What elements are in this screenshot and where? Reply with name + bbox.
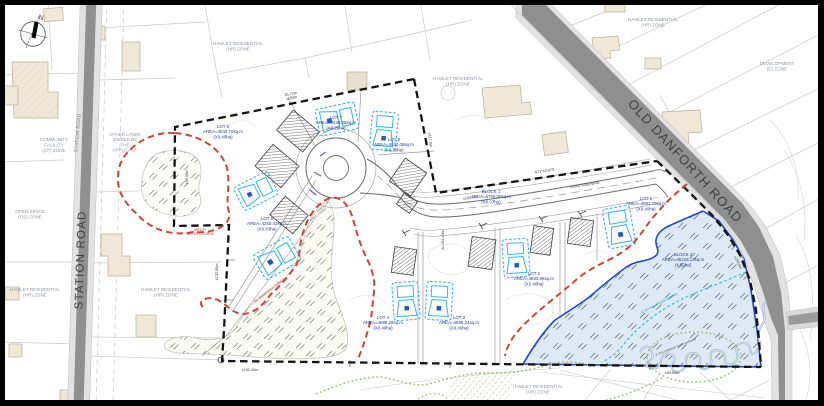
- svg-text:±99.06m: ±99.06m: [185, 170, 189, 185]
- svg-text:COMMUNITYFACILITY(CF) ZONE: COMMUNITYFACILITY(CF) ZONE: [40, 137, 68, 153]
- svg-text:A=154.43m: A=154.43m: [441, 230, 445, 250]
- svg-text:±152.40m: ±152.40m: [242, 368, 259, 372]
- svg-text:±132.58m: ±132.58m: [215, 263, 220, 280]
- svg-text:OPEN SPACE(OS) ZONE: OPEN SPACE(OS) ZONE: [15, 209, 45, 219]
- svg-text:±83.50m: ±83.50m: [665, 371, 680, 375]
